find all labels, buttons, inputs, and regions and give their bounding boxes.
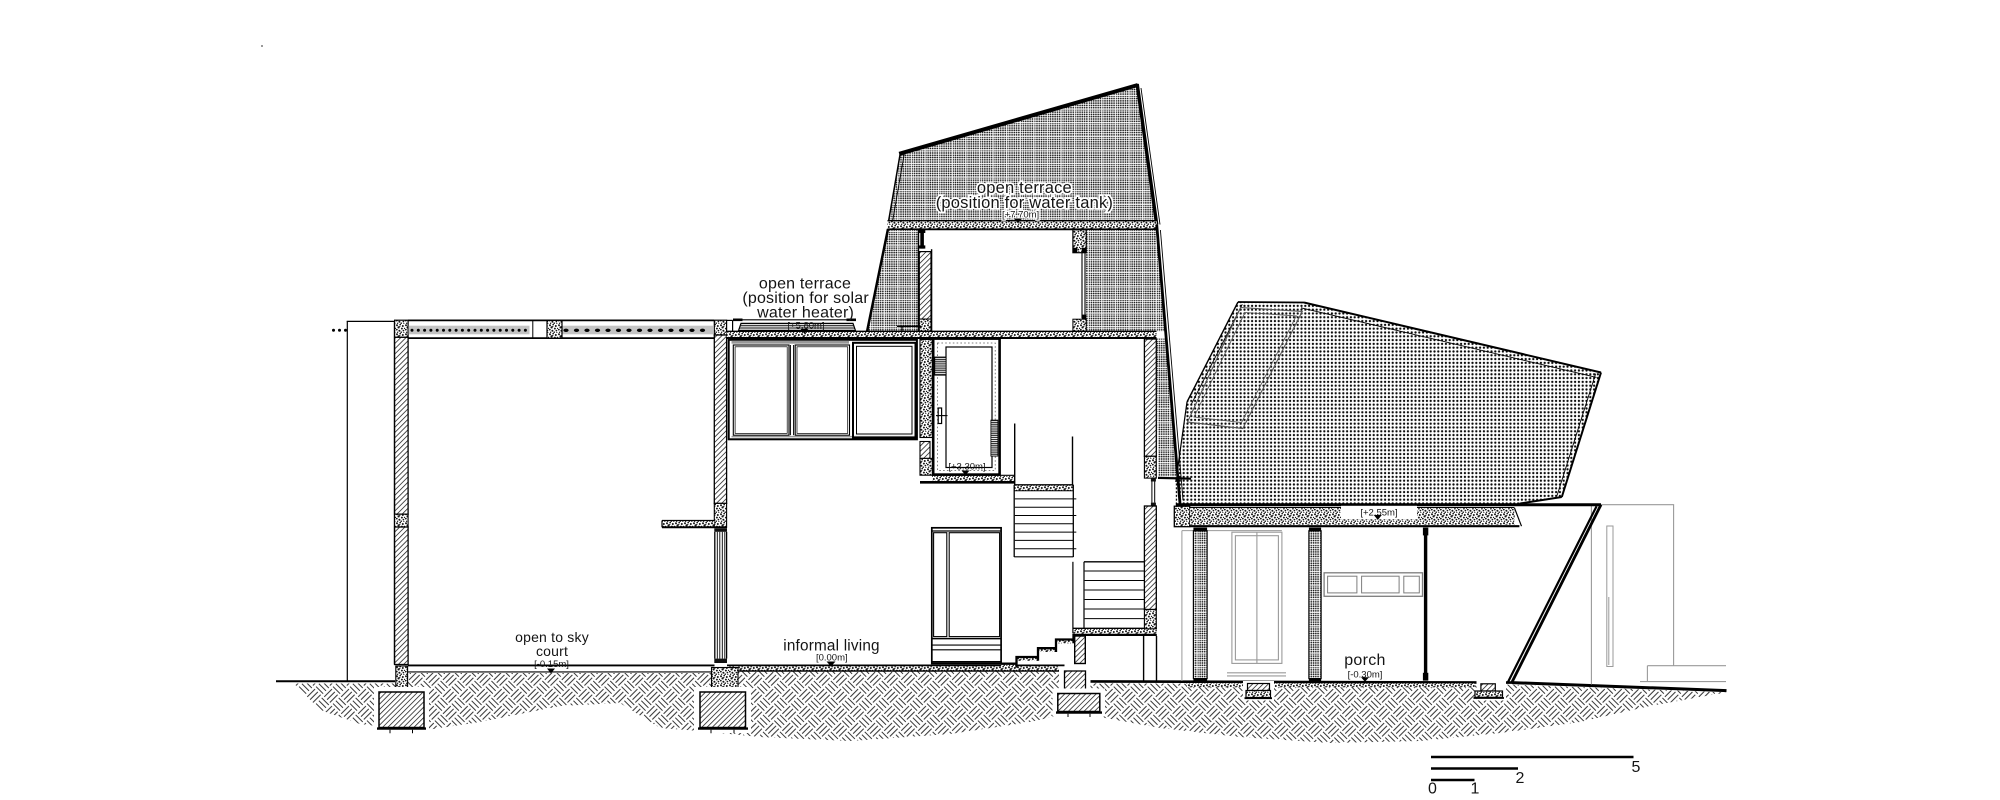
svg-text:water heater): water heater) bbox=[756, 305, 854, 322]
svg-text:2: 2 bbox=[1516, 770, 1525, 787]
svg-text:porch: porch bbox=[1344, 652, 1386, 669]
svg-text:1: 1 bbox=[1471, 781, 1480, 798]
svg-text:[-0.15m]: [-0.15m] bbox=[534, 659, 569, 670]
svg-text:court: court bbox=[536, 643, 568, 659]
svg-text:0: 0 bbox=[1428, 781, 1437, 798]
svg-text:5: 5 bbox=[1632, 759, 1641, 776]
